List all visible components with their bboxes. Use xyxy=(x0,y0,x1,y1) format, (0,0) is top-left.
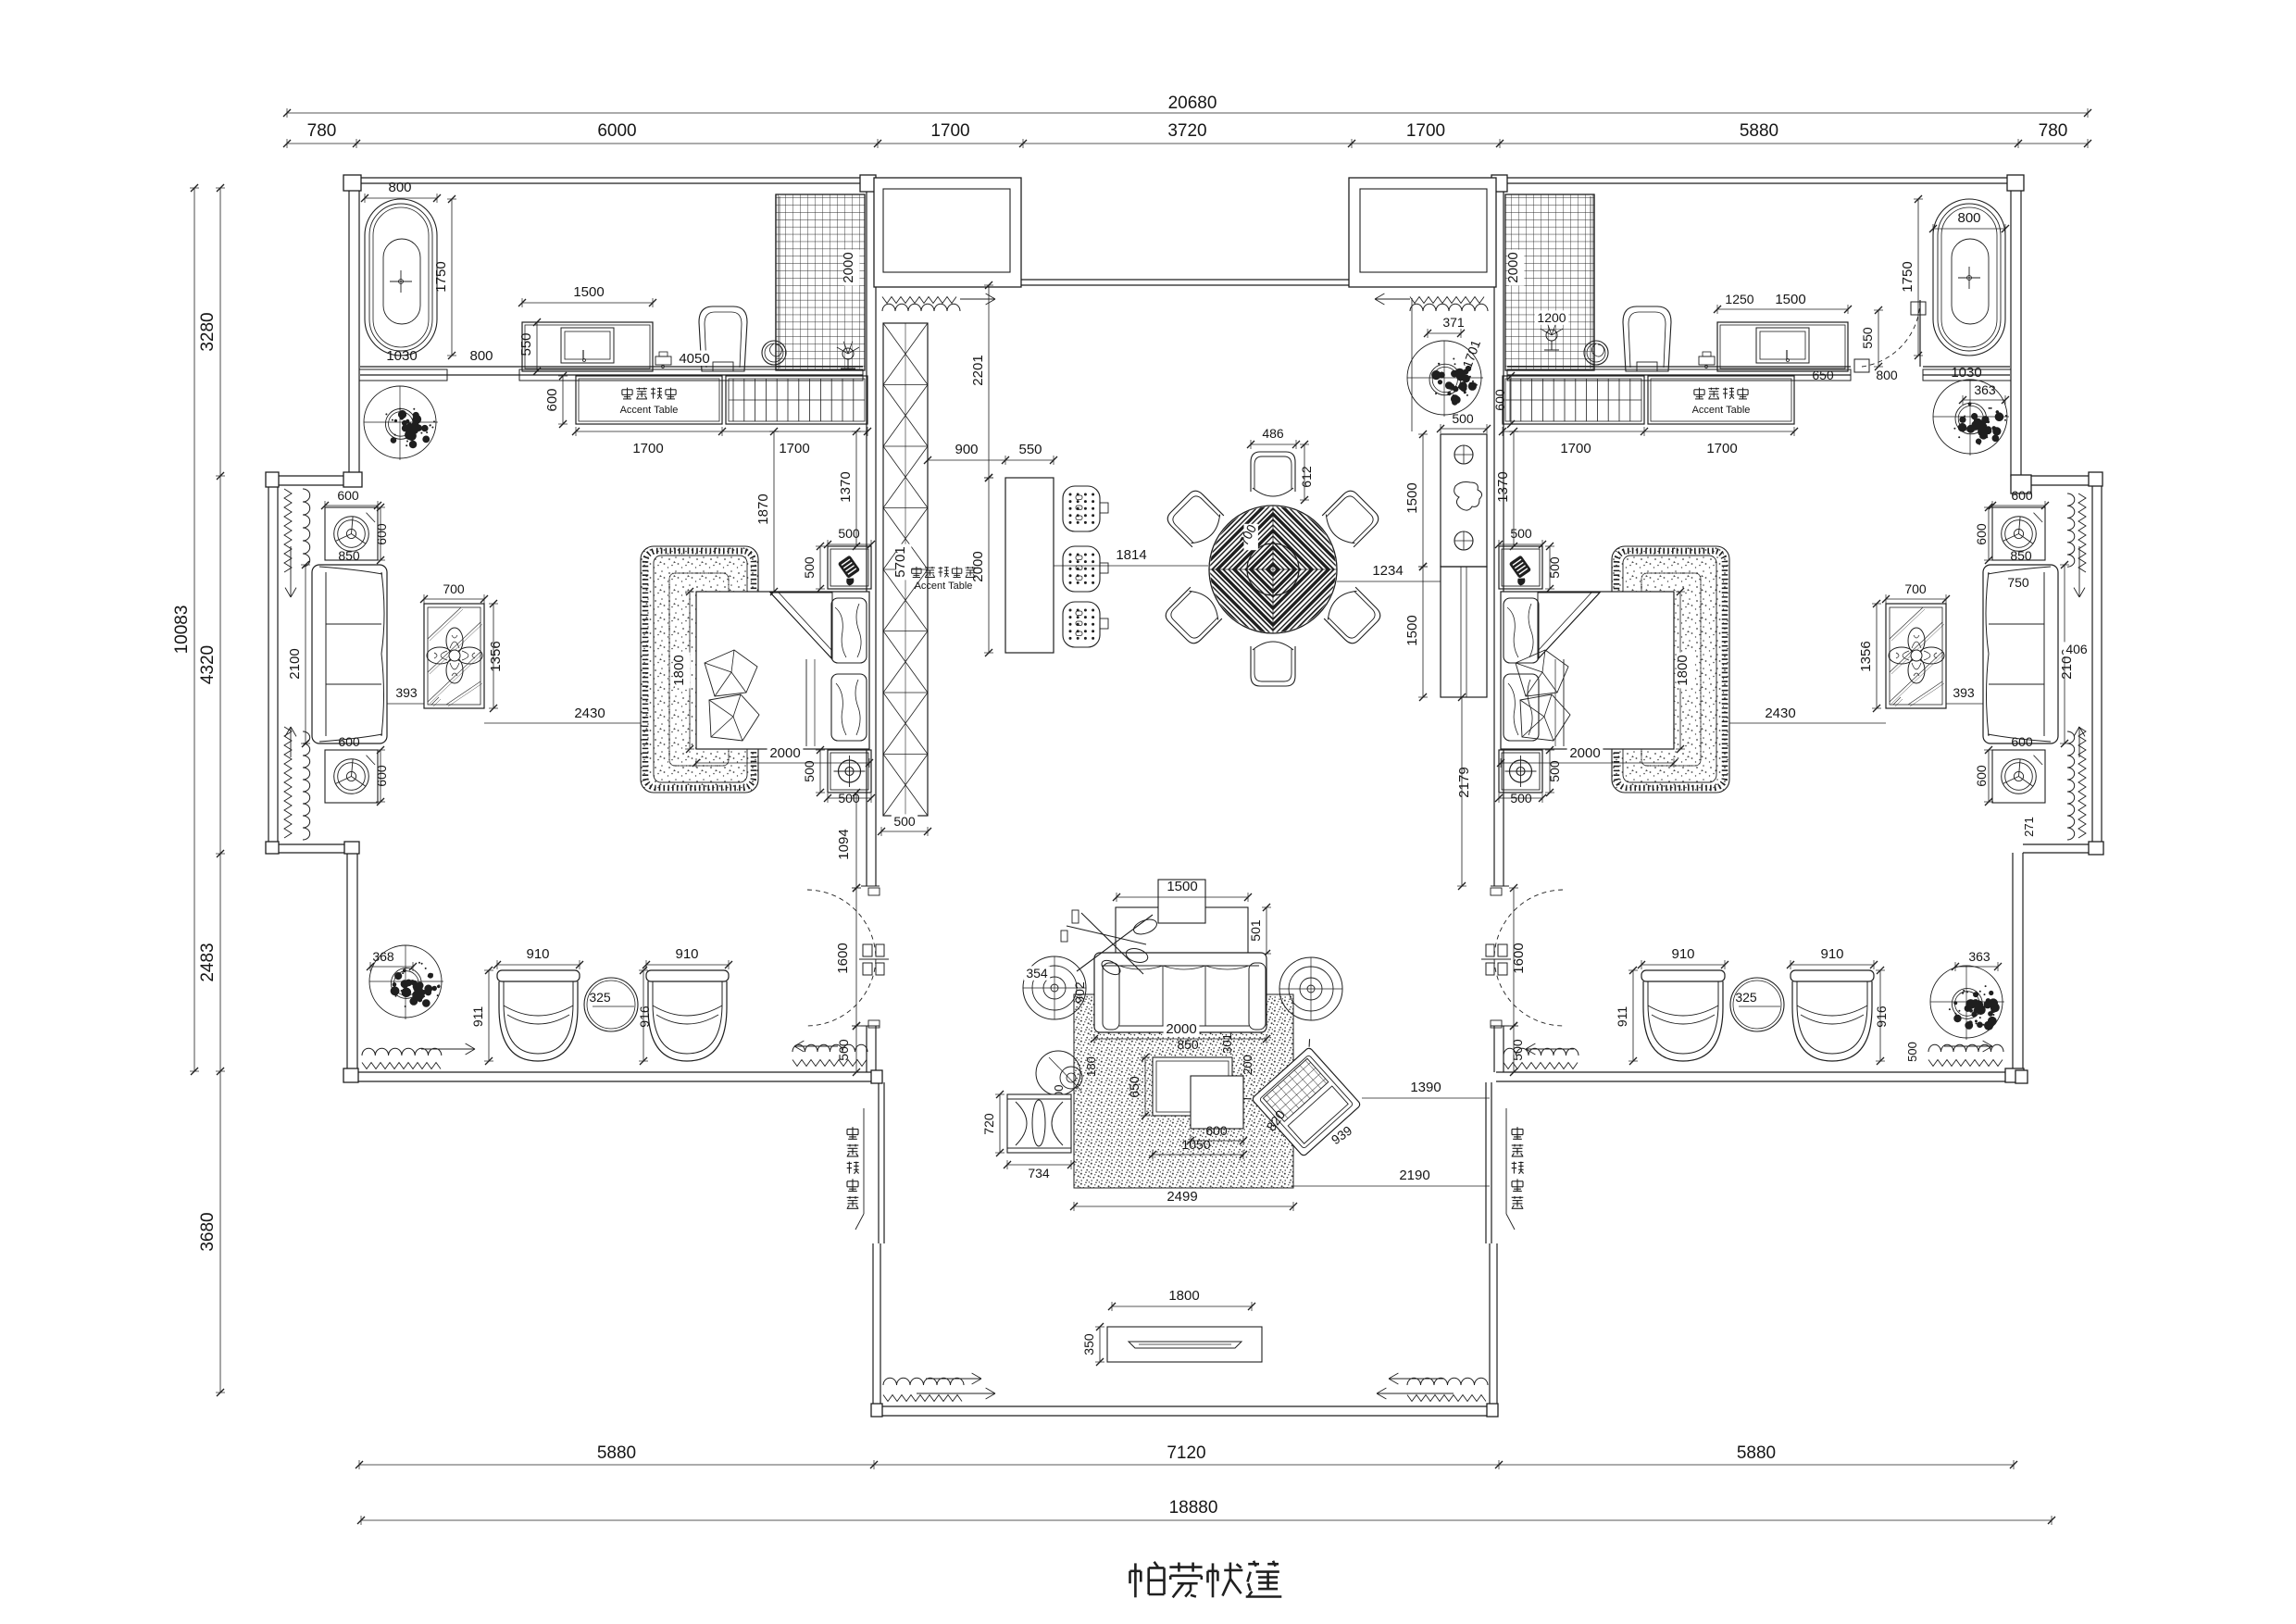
svg-text:1870: 1870 xyxy=(755,493,771,524)
svg-text:911: 911 xyxy=(1615,1006,1629,1028)
svg-text:800: 800 xyxy=(388,180,411,195)
svg-text:910: 910 xyxy=(675,946,698,962)
svg-text:600: 600 xyxy=(338,734,360,749)
svg-text:1700: 1700 xyxy=(930,121,969,141)
svg-text:700: 700 xyxy=(1904,581,1927,596)
svg-text:271: 271 xyxy=(2022,817,2036,837)
svg-text:2499: 2499 xyxy=(1167,1189,1197,1205)
svg-text:2000: 2000 xyxy=(1505,252,1521,282)
svg-text:600: 600 xyxy=(374,765,389,787)
svg-text:2201: 2201 xyxy=(970,355,986,385)
svg-text:1234: 1234 xyxy=(1372,563,1403,579)
svg-text:600: 600 xyxy=(1205,1123,1228,1138)
svg-text:910: 910 xyxy=(526,946,549,962)
svg-text:1050: 1050 xyxy=(1181,1137,1210,1152)
svg-text:780: 780 xyxy=(2039,121,2068,141)
svg-text:1800: 1800 xyxy=(1675,655,1691,685)
svg-text:393: 393 xyxy=(1953,685,1975,700)
svg-text:780: 780 xyxy=(307,121,337,141)
svg-text:600: 600 xyxy=(544,388,560,411)
svg-text:500: 500 xyxy=(1510,1039,1525,1061)
svg-text:600: 600 xyxy=(2011,734,2033,749)
svg-text:600: 600 xyxy=(1974,765,1989,787)
svg-text:720: 720 xyxy=(981,1113,996,1135)
svg-text:1700: 1700 xyxy=(779,441,809,456)
svg-text:3720: 3720 xyxy=(1167,121,1206,141)
svg-text:200: 200 xyxy=(1241,1055,1254,1075)
svg-text:325: 325 xyxy=(1735,990,1757,1005)
svg-text:734: 734 xyxy=(1028,1166,1050,1181)
svg-text:363: 363 xyxy=(1968,949,1990,964)
svg-text:1356: 1356 xyxy=(1858,641,1874,671)
svg-text:Accent Table: Accent Table xyxy=(915,581,973,592)
svg-text:2483: 2483 xyxy=(198,943,218,981)
svg-text:393: 393 xyxy=(395,685,418,700)
svg-text:406: 406 xyxy=(2065,642,2088,656)
svg-text:1030: 1030 xyxy=(386,348,417,364)
svg-text:1094: 1094 xyxy=(836,829,852,859)
svg-text:500: 500 xyxy=(1905,1042,1919,1062)
svg-text:1700: 1700 xyxy=(1406,121,1445,141)
svg-text:1500: 1500 xyxy=(573,284,604,300)
svg-text:1250: 1250 xyxy=(1725,292,1753,306)
svg-text:1600: 1600 xyxy=(1511,943,1527,973)
svg-text:600: 600 xyxy=(337,488,359,503)
svg-text:1030: 1030 xyxy=(1951,365,1981,381)
svg-text:1500: 1500 xyxy=(1775,292,1805,307)
svg-text:4050: 4050 xyxy=(679,351,709,367)
svg-text:910: 910 xyxy=(1820,946,1843,962)
svg-text:501: 501 xyxy=(1248,919,1263,942)
svg-text:5880: 5880 xyxy=(1737,1443,1776,1463)
svg-text:1700: 1700 xyxy=(1706,441,1737,456)
svg-text:1500: 1500 xyxy=(1404,482,1420,513)
svg-text:850: 850 xyxy=(1177,1037,1199,1052)
svg-text:1500: 1500 xyxy=(1404,615,1420,645)
svg-text:2430: 2430 xyxy=(574,706,605,721)
svg-text:1356: 1356 xyxy=(488,641,504,671)
svg-text:371: 371 xyxy=(1442,315,1465,330)
svg-text:1370: 1370 xyxy=(1495,471,1511,502)
svg-text:5701: 5701 xyxy=(892,546,908,577)
svg-text:1750: 1750 xyxy=(433,261,449,292)
svg-text:2000: 2000 xyxy=(769,745,800,761)
svg-text:550: 550 xyxy=(518,332,534,356)
svg-text:2100: 2100 xyxy=(287,648,303,679)
svg-text:910: 910 xyxy=(1671,946,1694,962)
svg-text:916: 916 xyxy=(1874,1006,1889,1028)
svg-text:18880: 18880 xyxy=(1169,1498,1218,1518)
svg-text:902: 902 xyxy=(1072,981,1087,1004)
svg-text:1800: 1800 xyxy=(671,655,687,685)
svg-text:2179: 2179 xyxy=(1456,767,1472,797)
svg-text:1750: 1750 xyxy=(1900,261,1915,292)
svg-text:550: 550 xyxy=(1860,327,1875,349)
svg-text:5880: 5880 xyxy=(1740,121,1778,141)
svg-text:700: 700 xyxy=(443,581,465,596)
svg-text:4320: 4320 xyxy=(198,645,218,684)
svg-text:800: 800 xyxy=(1876,368,1898,382)
svg-text:20680: 20680 xyxy=(1168,94,1217,113)
svg-text:500: 500 xyxy=(1547,556,1562,579)
svg-text:550: 550 xyxy=(1018,442,1042,457)
svg-text:363: 363 xyxy=(1974,382,1996,397)
svg-text:368: 368 xyxy=(372,949,394,964)
svg-text:500: 500 xyxy=(802,760,817,782)
svg-text:3280: 3280 xyxy=(198,312,218,351)
svg-text:Accent Table: Accent Table xyxy=(1692,405,1751,416)
svg-text:911: 911 xyxy=(470,1006,485,1028)
svg-text:500: 500 xyxy=(893,814,916,829)
svg-text:2000: 2000 xyxy=(841,252,856,282)
svg-text:2000: 2000 xyxy=(1569,745,1600,761)
svg-text:2430: 2430 xyxy=(1765,706,1795,721)
svg-text:325: 325 xyxy=(589,990,611,1005)
svg-text:1390: 1390 xyxy=(1410,1080,1441,1095)
svg-text:1814: 1814 xyxy=(1116,547,1146,563)
svg-text:6000: 6000 xyxy=(597,121,636,141)
svg-text:600: 600 xyxy=(1974,523,1989,545)
svg-text:600: 600 xyxy=(2011,488,2033,503)
svg-text:800: 800 xyxy=(1957,210,1980,226)
svg-text:354: 354 xyxy=(1026,966,1048,981)
svg-text:916: 916 xyxy=(637,1006,652,1028)
svg-text:800: 800 xyxy=(469,348,493,364)
svg-text:600: 600 xyxy=(374,523,389,545)
svg-text:600: 600 xyxy=(1492,389,1507,411)
svg-text:486: 486 xyxy=(1262,426,1284,441)
svg-text:650: 650 xyxy=(1127,1076,1142,1098)
svg-text:301: 301 xyxy=(1220,1033,1234,1054)
svg-text:500: 500 xyxy=(1547,760,1562,782)
svg-text:500: 500 xyxy=(836,1039,851,1061)
svg-text:2000: 2000 xyxy=(1166,1021,1196,1037)
svg-text:1800: 1800 xyxy=(1168,1288,1199,1304)
svg-text:10083: 10083 xyxy=(172,606,192,655)
svg-text:1700: 1700 xyxy=(632,441,663,456)
svg-text:180: 180 xyxy=(1084,1056,1098,1077)
svg-text:1700: 1700 xyxy=(1560,441,1591,456)
svg-text:900: 900 xyxy=(955,442,978,457)
svg-text:2190: 2190 xyxy=(1399,1168,1429,1183)
svg-text:612: 612 xyxy=(1299,466,1314,488)
svg-text:1200: 1200 xyxy=(1537,310,1566,325)
svg-text:1500: 1500 xyxy=(1167,879,1197,894)
svg-text:1600: 1600 xyxy=(835,943,851,973)
svg-text:3680: 3680 xyxy=(198,1212,218,1251)
svg-text:500: 500 xyxy=(802,556,817,579)
svg-text:350: 350 xyxy=(1081,1333,1096,1355)
svg-text:750: 750 xyxy=(2007,575,2029,590)
svg-text:5880: 5880 xyxy=(597,1443,636,1463)
svg-text:Accent Table: Accent Table xyxy=(620,405,679,416)
svg-text:1370: 1370 xyxy=(838,471,854,502)
svg-text:7120: 7120 xyxy=(1167,1443,1205,1463)
